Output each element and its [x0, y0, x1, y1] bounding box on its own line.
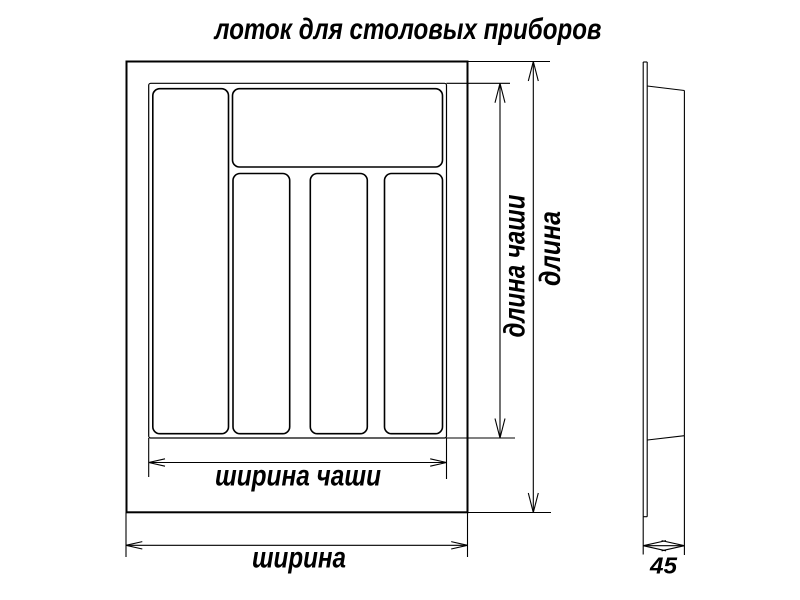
svg-text:ширина: ширина — [252, 542, 346, 575]
svg-text:45: 45 — [649, 553, 678, 579]
svg-text:ширина чаши: ширина чаши — [215, 460, 381, 493]
svg-text:длина чаши: длина чаши — [499, 195, 532, 338]
svg-text:длина: длина — [534, 211, 567, 286]
svg-text:лоток для столовых приборов: лоток для столовых приборов — [213, 13, 602, 46]
